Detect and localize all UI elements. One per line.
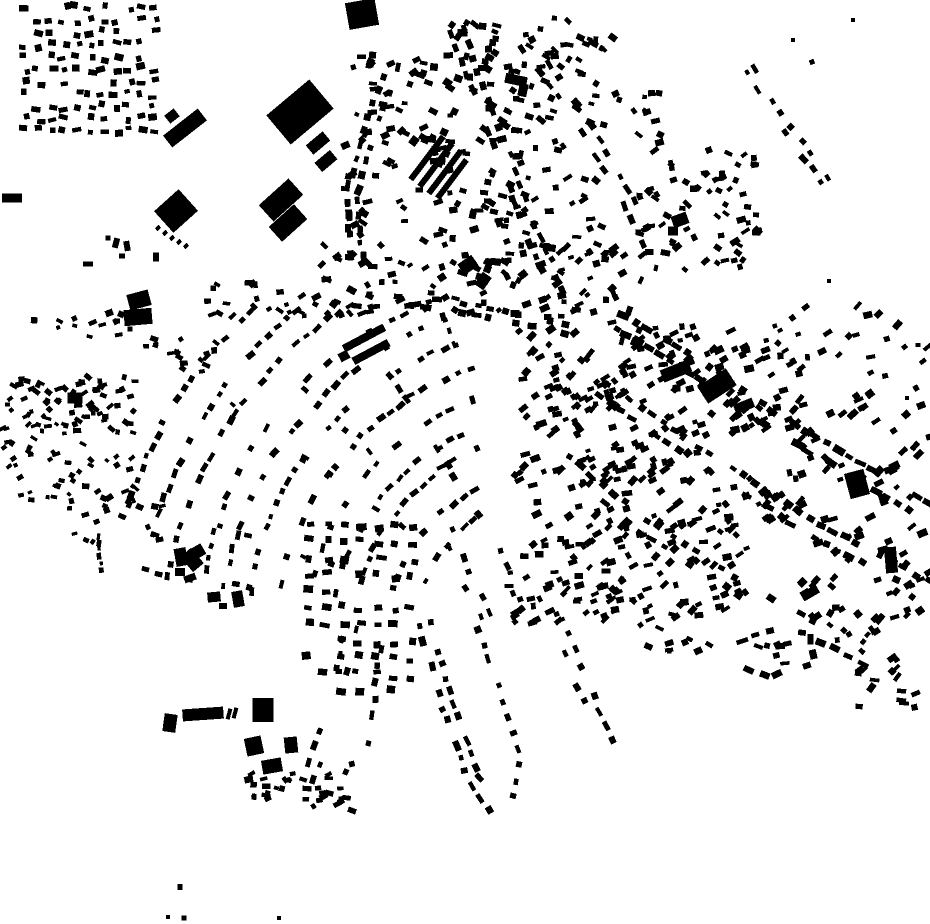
building <box>438 706 446 714</box>
building <box>367 425 375 433</box>
building <box>923 343 930 352</box>
building <box>75 20 81 26</box>
building <box>279 785 286 792</box>
building <box>815 638 827 648</box>
building <box>591 591 600 598</box>
building <box>125 117 131 124</box>
building <box>619 335 626 345</box>
building <box>563 174 573 183</box>
building <box>441 375 451 384</box>
building <box>178 884 183 890</box>
building <box>115 389 122 394</box>
building <box>540 537 548 543</box>
building <box>724 150 733 157</box>
building <box>353 625 358 633</box>
building <box>96 553 101 560</box>
building <box>428 619 434 626</box>
building <box>903 606 911 614</box>
building <box>569 200 576 207</box>
building <box>57 56 66 62</box>
building <box>594 391 605 401</box>
building <box>465 39 475 50</box>
building <box>369 99 376 107</box>
building <box>751 155 757 161</box>
building <box>563 511 574 522</box>
building <box>536 595 543 603</box>
building <box>904 505 914 515</box>
building <box>468 781 476 792</box>
building <box>81 511 90 518</box>
building <box>744 204 752 210</box>
building <box>151 76 159 83</box>
building <box>680 540 689 549</box>
building <box>518 150 524 157</box>
building <box>858 647 866 655</box>
building <box>449 206 458 213</box>
building <box>389 653 398 660</box>
building <box>649 456 657 464</box>
building <box>763 338 769 343</box>
building <box>83 372 92 381</box>
building <box>572 682 581 692</box>
building <box>367 144 374 151</box>
building <box>562 299 567 304</box>
building <box>668 612 675 618</box>
building <box>498 548 504 555</box>
building <box>513 778 519 785</box>
building <box>291 466 299 474</box>
building <box>356 432 364 440</box>
building <box>337 350 350 363</box>
building <box>669 176 677 183</box>
building <box>531 195 540 202</box>
building <box>357 620 366 626</box>
building <box>736 637 749 645</box>
building <box>519 86 527 91</box>
building <box>522 412 530 420</box>
building <box>291 306 302 316</box>
building <box>545 393 553 401</box>
building <box>54 482 62 489</box>
building <box>56 325 61 330</box>
building <box>473 625 482 634</box>
building <box>105 309 114 318</box>
building <box>288 428 295 435</box>
building <box>183 243 189 249</box>
building <box>556 62 565 71</box>
building <box>19 125 28 132</box>
building <box>217 523 223 529</box>
building <box>891 587 900 597</box>
building <box>322 569 332 575</box>
building <box>706 188 713 195</box>
building <box>595 707 603 717</box>
building <box>592 259 601 267</box>
building <box>137 15 146 21</box>
building <box>408 542 417 548</box>
building <box>743 665 755 675</box>
building <box>344 180 351 191</box>
building <box>162 713 177 733</box>
building <box>637 276 644 285</box>
building <box>250 782 257 788</box>
building <box>89 105 97 111</box>
building <box>374 662 380 669</box>
building <box>441 241 448 248</box>
building <box>897 688 907 693</box>
building <box>505 584 514 588</box>
building <box>776 109 784 117</box>
building <box>545 208 554 214</box>
building <box>527 619 537 626</box>
building <box>527 482 537 489</box>
building <box>126 466 134 473</box>
building <box>342 768 349 776</box>
building <box>564 17 572 25</box>
building <box>149 442 158 452</box>
building <box>592 152 602 163</box>
building <box>341 521 349 528</box>
building <box>562 649 569 657</box>
building <box>428 290 435 295</box>
building <box>239 398 247 406</box>
building <box>232 581 240 588</box>
building <box>99 392 107 399</box>
building <box>376 115 382 122</box>
building <box>385 371 394 380</box>
building <box>45 495 49 500</box>
building <box>406 572 413 580</box>
building <box>709 584 717 592</box>
building <box>84 30 94 38</box>
building <box>96 92 104 98</box>
building <box>622 505 631 513</box>
building <box>390 585 397 591</box>
building <box>817 179 824 186</box>
building <box>304 605 312 611</box>
building <box>451 296 460 302</box>
building <box>568 255 575 260</box>
building <box>514 97 525 104</box>
building <box>114 68 123 75</box>
building <box>864 631 871 638</box>
building <box>430 63 439 71</box>
building <box>317 761 323 768</box>
building <box>385 483 394 492</box>
building <box>524 112 534 120</box>
building <box>499 699 506 706</box>
building <box>396 198 404 204</box>
building <box>33 19 41 25</box>
building <box>275 356 283 364</box>
building <box>369 710 375 720</box>
building <box>731 345 739 353</box>
building <box>653 349 665 360</box>
building <box>179 365 187 373</box>
building <box>589 463 597 471</box>
building <box>526 595 535 602</box>
building <box>88 319 97 327</box>
building <box>50 494 57 499</box>
building <box>0 444 7 451</box>
building <box>732 531 740 539</box>
building <box>645 249 654 255</box>
building <box>268 514 273 520</box>
building <box>279 487 286 494</box>
building <box>350 64 357 71</box>
building <box>421 264 430 272</box>
building <box>689 323 696 331</box>
building <box>354 651 363 659</box>
building <box>535 115 546 126</box>
building <box>311 292 322 301</box>
building <box>664 639 674 647</box>
building <box>702 431 711 440</box>
building <box>670 533 677 540</box>
building <box>684 332 693 339</box>
building <box>899 549 909 557</box>
building <box>608 423 617 431</box>
building <box>604 523 613 531</box>
building <box>788 314 796 322</box>
building <box>851 18 855 22</box>
building <box>254 340 263 349</box>
building <box>86 334 93 339</box>
building <box>112 237 120 248</box>
building <box>560 42 566 48</box>
building <box>622 184 632 195</box>
building <box>389 676 398 682</box>
building <box>871 417 881 425</box>
building <box>654 138 664 147</box>
building <box>362 469 371 479</box>
building <box>681 266 688 273</box>
building <box>916 401 926 410</box>
building <box>430 283 437 290</box>
building <box>656 487 666 496</box>
building <box>252 794 257 801</box>
building <box>518 403 529 413</box>
building <box>471 762 480 772</box>
building <box>740 423 750 433</box>
building <box>520 553 529 559</box>
building <box>635 229 641 235</box>
building <box>162 230 168 236</box>
building <box>310 740 319 751</box>
building <box>916 528 928 539</box>
building <box>187 375 195 383</box>
building <box>398 522 407 531</box>
building <box>377 494 383 501</box>
building <box>58 19 65 25</box>
building <box>415 187 422 192</box>
building <box>306 618 315 626</box>
building <box>529 454 541 464</box>
building <box>73 428 82 434</box>
building <box>319 622 330 629</box>
building <box>353 155 359 162</box>
building <box>537 232 546 244</box>
building <box>176 457 186 468</box>
building <box>586 522 594 529</box>
building <box>519 249 527 257</box>
building <box>301 385 310 394</box>
building <box>90 54 96 60</box>
building <box>24 69 30 75</box>
building <box>481 642 487 649</box>
building <box>661 437 671 446</box>
building <box>376 554 387 560</box>
building <box>200 462 209 472</box>
building <box>379 279 385 285</box>
building <box>278 580 284 589</box>
building <box>428 474 436 482</box>
building <box>656 130 665 139</box>
building <box>522 574 530 582</box>
building <box>207 403 216 412</box>
building <box>545 341 553 349</box>
building <box>574 597 583 602</box>
building <box>88 130 93 135</box>
building <box>312 323 322 333</box>
building <box>896 697 906 703</box>
building <box>514 745 521 754</box>
building <box>795 370 803 378</box>
building <box>302 797 309 802</box>
building <box>596 135 605 144</box>
building <box>541 468 547 475</box>
building <box>827 279 831 283</box>
building <box>352 668 359 674</box>
building <box>449 699 457 709</box>
building <box>465 568 472 575</box>
building <box>385 257 393 261</box>
building <box>484 313 492 321</box>
building <box>829 573 838 582</box>
building <box>445 139 453 144</box>
building <box>468 515 477 524</box>
building <box>345 224 351 233</box>
building <box>22 77 30 85</box>
building <box>911 491 923 501</box>
building <box>578 127 587 137</box>
building <box>638 474 647 483</box>
building <box>50 66 59 72</box>
building <box>479 289 487 296</box>
building <box>459 187 467 194</box>
building <box>264 523 271 531</box>
building <box>114 318 120 323</box>
building <box>437 272 447 282</box>
building <box>417 623 423 630</box>
building <box>644 541 652 549</box>
building <box>349 167 357 178</box>
building <box>334 415 341 423</box>
building <box>553 185 559 191</box>
building <box>662 211 672 220</box>
building <box>346 285 357 295</box>
building <box>357 139 364 149</box>
building <box>345 0 379 30</box>
building <box>574 581 585 590</box>
building <box>531 509 543 519</box>
building <box>507 570 513 575</box>
building <box>737 263 743 270</box>
building <box>283 314 291 321</box>
building <box>581 697 589 705</box>
building <box>793 475 799 482</box>
building <box>371 652 380 660</box>
building <box>202 412 209 420</box>
building <box>441 293 450 302</box>
building <box>473 444 480 452</box>
building <box>386 60 396 68</box>
building <box>113 28 119 34</box>
building <box>16 474 24 481</box>
building <box>118 513 127 521</box>
building <box>182 707 224 722</box>
building <box>453 74 463 84</box>
building <box>446 686 454 696</box>
building <box>916 343 921 347</box>
building <box>96 539 102 546</box>
building <box>460 492 469 501</box>
building <box>71 531 77 536</box>
building <box>60 81 68 86</box>
building <box>409 488 419 498</box>
building <box>394 510 401 517</box>
building <box>798 153 809 164</box>
building <box>608 32 619 42</box>
building <box>463 735 472 746</box>
building <box>685 385 694 393</box>
building <box>772 323 778 329</box>
building <box>616 96 623 103</box>
building <box>735 550 744 558</box>
building <box>458 755 463 761</box>
building <box>796 609 806 618</box>
building <box>714 259 721 266</box>
building <box>659 580 669 590</box>
building <box>324 776 333 780</box>
building <box>221 382 228 389</box>
building <box>882 373 889 379</box>
building <box>254 295 260 302</box>
building <box>374 622 381 627</box>
building <box>50 128 56 133</box>
building <box>124 89 130 94</box>
building <box>730 425 740 434</box>
building <box>806 514 816 524</box>
building <box>101 57 110 65</box>
building <box>320 241 329 250</box>
building <box>521 61 527 68</box>
building <box>651 117 661 124</box>
building <box>669 329 679 337</box>
building <box>460 522 469 531</box>
building <box>443 676 449 682</box>
building <box>371 677 379 686</box>
building <box>49 104 58 110</box>
building <box>637 621 644 628</box>
building <box>783 640 792 647</box>
building <box>222 301 230 306</box>
building <box>108 92 117 98</box>
building <box>154 16 160 22</box>
building <box>211 347 217 354</box>
building <box>517 596 524 603</box>
building <box>113 453 120 460</box>
